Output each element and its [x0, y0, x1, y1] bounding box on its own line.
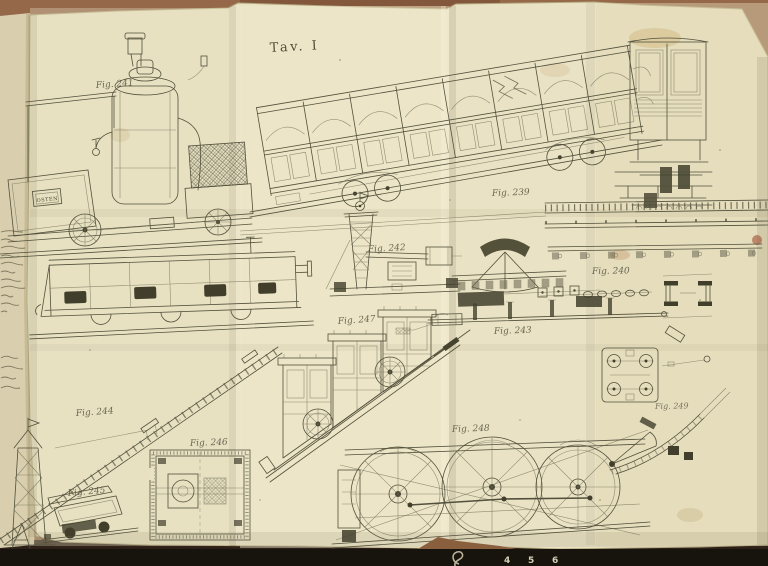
ruler-mark-4: 4: [504, 556, 510, 566]
fig240-label: Fig. 240: [591, 266, 630, 277]
fig249-label: Fig. 249: [654, 401, 689, 411]
fig243-label: Fig. 243: [493, 326, 532, 337]
ruler-mark-6: 6: [552, 556, 558, 566]
plate-title: Tav. I: [269, 38, 319, 56]
ruler-mark-5: 5: [528, 556, 534, 566]
fig242-label: Fig. 242: [367, 243, 407, 255]
fig239-label: Fig. 239: [491, 188, 530, 199]
scanned-plate-photo: OSTEN: [0, 0, 768, 566]
fig246-label: Fig. 246: [189, 438, 228, 449]
fig248-label: Fig. 248: [451, 424, 490, 435]
plate-drawing-canvas: OSTEN: [0, 0, 768, 566]
